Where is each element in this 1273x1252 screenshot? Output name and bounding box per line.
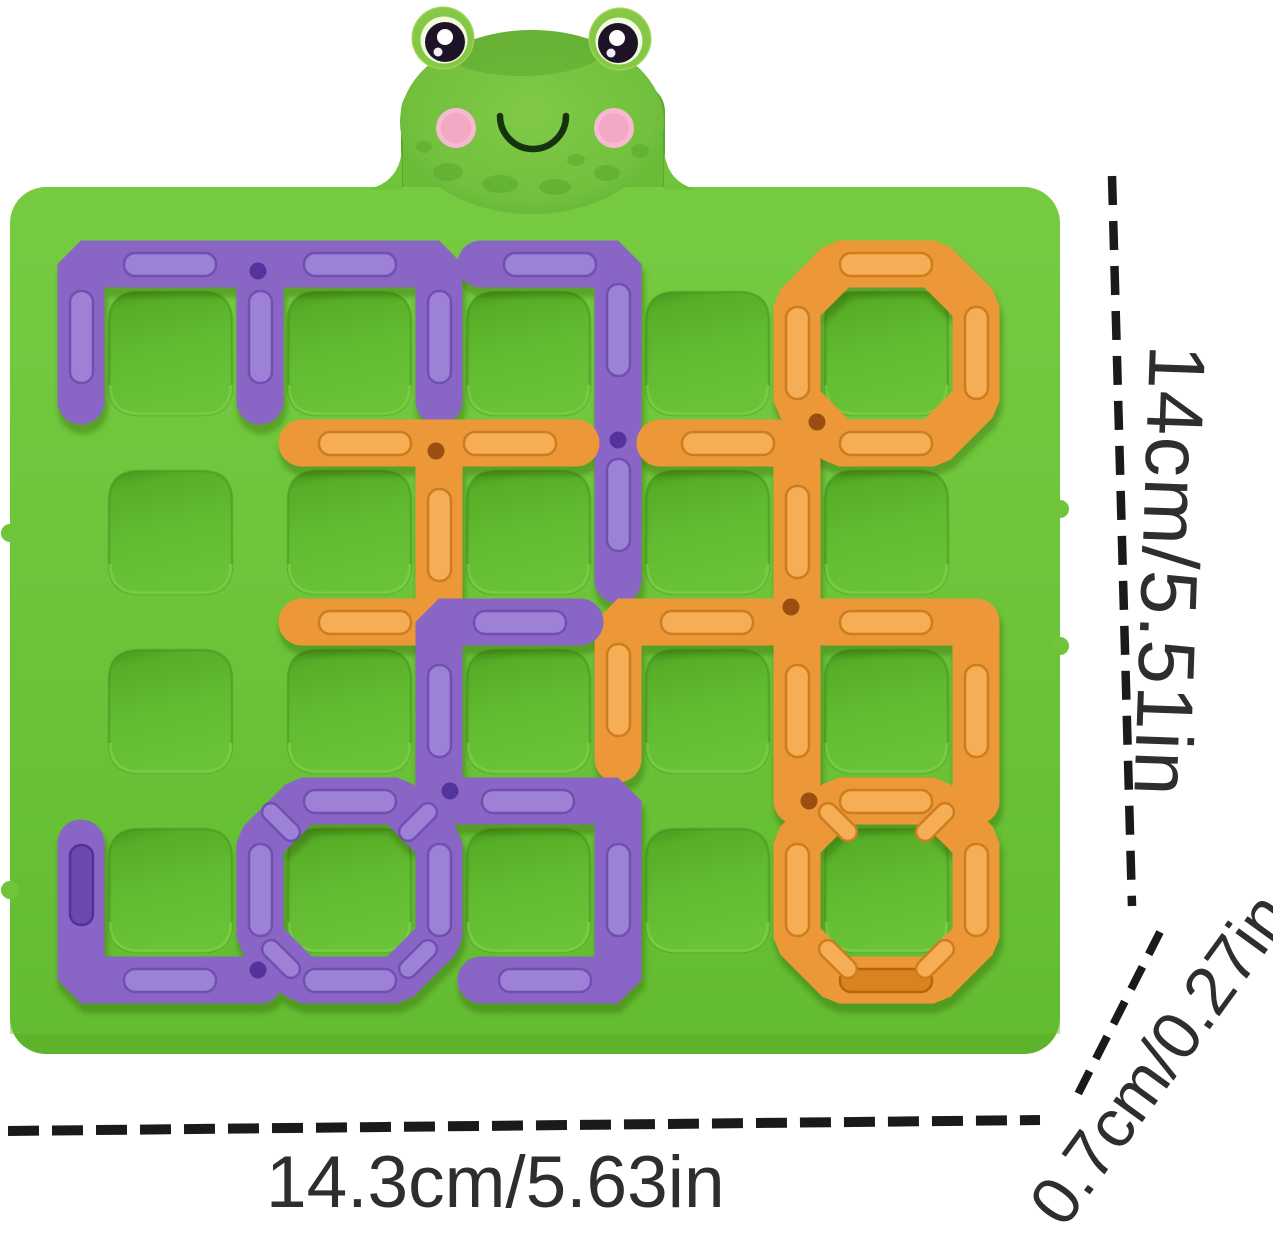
svg-text:14cm/5.51in: 14cm/5.51in [1117,343,1222,798]
svg-text:14.3cm/5.63in: 14.3cm/5.63in [266,1142,725,1223]
